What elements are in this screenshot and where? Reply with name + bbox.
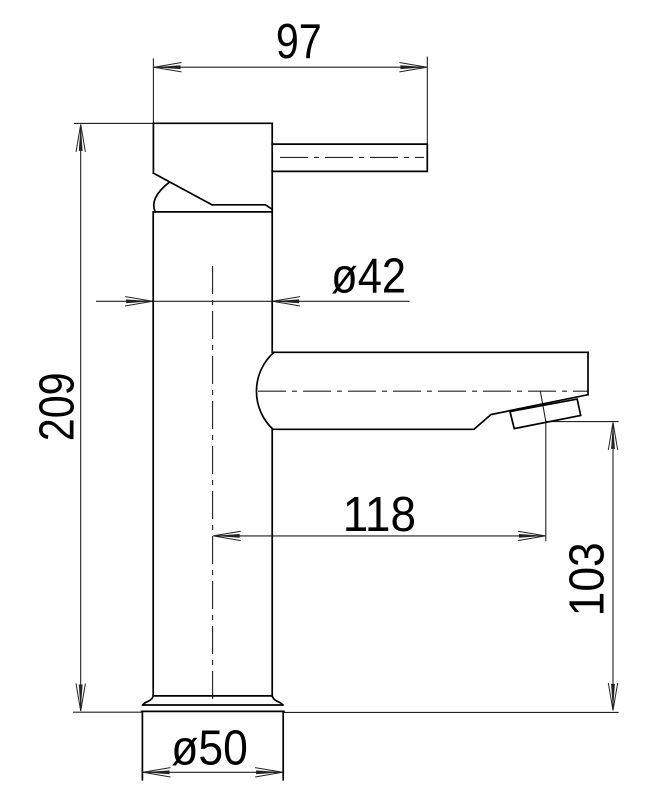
svg-text:103: 103 (558, 542, 614, 616)
svg-text:ø50: ø50 (171, 719, 248, 775)
svg-text:118: 118 (343, 488, 416, 543)
svg-text:209: 209 (29, 372, 84, 441)
svg-text:97: 97 (276, 14, 322, 69)
svg-text:ø42: ø42 (331, 248, 406, 303)
